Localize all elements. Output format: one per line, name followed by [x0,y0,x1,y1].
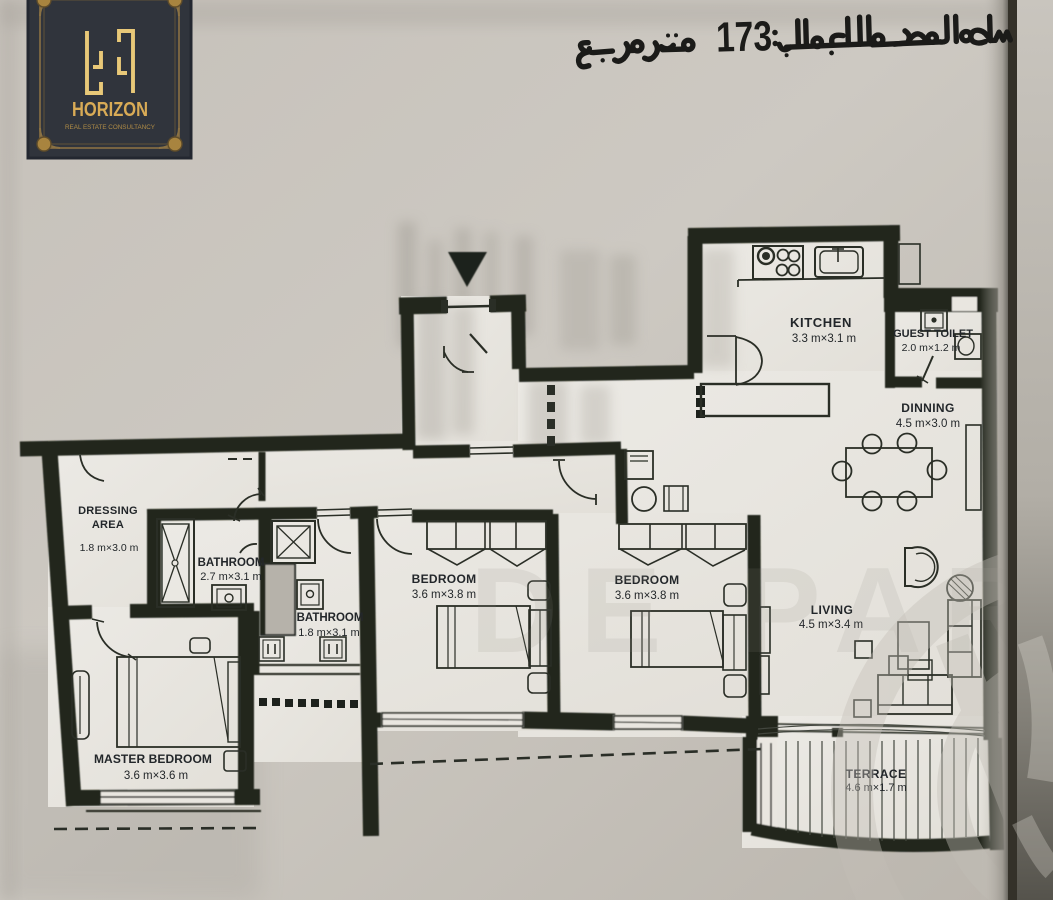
svg-text:4.5 m×3.0 m: 4.5 m×3.0 m [896,418,960,430]
svg-text:1.8 m×3.1 m: 1.8 m×3.1 m [298,627,359,639]
svg-text:1.8 m×3.0 m: 1.8 m×3.0 m [80,542,139,554]
svg-text:BEDROOM: BEDROOM [412,572,477,586]
svg-text:3.3 m×3.1 m: 3.3 m×3.1 m [792,333,856,345]
svg-text:DINNING: DINNING [901,401,954,415]
svg-text:3.6 m×3.8 m: 3.6 m×3.8 m [412,589,476,601]
svg-text:173: 173 [715,12,772,61]
svg-text:BATHROOM: BATHROOM [198,557,265,569]
svg-text:HORIZON: HORIZON [72,99,148,121]
svg-text:2.0 m×1.2 m: 2.0 m×1.2 m [902,342,961,354]
svg-text:MASTER BEDROOM: MASTER BEDROOM [94,752,212,766]
svg-text:KITCHEN: KITCHEN [790,315,852,330]
svg-text:DRESSING: DRESSING [78,505,138,517]
svg-text:BATHROOM: BATHROOM [297,612,364,624]
svg-text:REAL ESTATE CONSULTANCY: REAL ESTATE CONSULTANCY [65,124,156,131]
svg-text:GUEST TOILET: GUEST TOILET [893,328,973,340]
svg-text:AREA: AREA [92,519,124,531]
svg-text:3.6 m×3.6 m: 3.6 m×3.6 m [124,770,188,782]
svg-text:2.7 m×3.1 m: 2.7 m×3.1 m [200,571,261,583]
